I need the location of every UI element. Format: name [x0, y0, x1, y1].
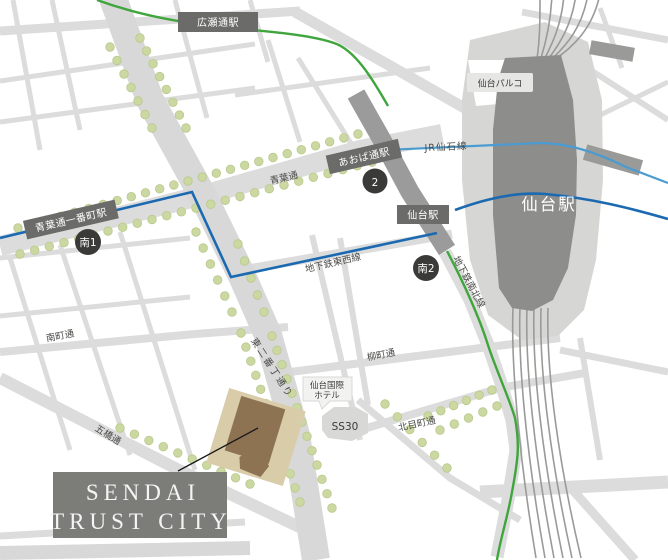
tree-icon — [133, 219, 142, 228]
ss30-label: SS30 — [332, 421, 359, 433]
tree-icon — [30, 246, 39, 255]
tree-icon — [240, 257, 249, 266]
title-line2: TRUST CITY — [50, 509, 232, 534]
tree-icon — [212, 169, 221, 178]
tree-icon — [268, 332, 277, 341]
tree-icon — [237, 329, 246, 338]
tree-icon — [169, 98, 178, 107]
tree-icon — [493, 402, 502, 411]
tree-icon — [198, 173, 207, 182]
tree-icon — [228, 308, 237, 317]
tree-icon — [340, 134, 349, 143]
tree-icon — [234, 240, 243, 249]
tree-icon — [226, 165, 235, 174]
tree-icon — [170, 181, 179, 190]
tree-icon — [381, 400, 390, 409]
tree-icon — [118, 223, 127, 232]
tree-icon — [120, 70, 129, 79]
tree-icon — [449, 401, 458, 410]
tree-icon — [182, 124, 191, 133]
tree-icon — [246, 480, 255, 489]
tree-icon — [148, 215, 157, 224]
tree-icon — [141, 189, 150, 198]
parco-label: 仙台パルコ — [478, 78, 523, 90]
tree-icon — [60, 238, 69, 247]
tree-icon — [283, 149, 292, 158]
tree-icon — [155, 185, 164, 194]
tree-icon — [145, 436, 154, 445]
tree-icon — [291, 484, 300, 493]
tree-icon — [479, 408, 488, 417]
tree-icon — [116, 424, 125, 433]
title-line1: SENDAI — [86, 480, 200, 505]
tree-icon — [142, 47, 151, 56]
tree-icon — [311, 142, 320, 151]
tree-icon — [430, 451, 439, 460]
tree-icon — [192, 228, 201, 237]
tree-icon — [206, 200, 215, 209]
tree-icon — [174, 449, 183, 458]
tree-icon — [242, 343, 251, 352]
exit-minami1-label: 南1 — [79, 236, 96, 249]
tree-icon — [450, 420, 459, 429]
sendai-building-label: 仙台駅 — [521, 195, 577, 214]
tree-icon — [323, 489, 332, 498]
tree-icon — [437, 407, 446, 416]
tree-icon — [328, 504, 337, 513]
tree-icon — [127, 83, 136, 92]
tree-icon — [488, 386, 497, 395]
tree-icon — [253, 291, 262, 300]
tree-icon — [240, 161, 249, 170]
tree-icon — [45, 242, 54, 251]
tree-icon — [303, 432, 312, 441]
access-map: 仙台パルコ 仙台国際 ホテル SS30 青葉通 JR仙石線 地下鉄東西線 地下鉄… — [0, 0, 668, 560]
tree-icon — [273, 346, 282, 355]
tree-icon — [231, 474, 240, 483]
tree-icon — [436, 426, 445, 435]
tree-icon — [250, 188, 259, 197]
sendai-subway-label: 仙台駅 — [407, 209, 439, 222]
tree-icon — [127, 192, 136, 201]
tree-icon — [14, 224, 23, 233]
tree-icon — [162, 85, 171, 94]
tree-icon — [247, 274, 256, 283]
tree-icon — [16, 250, 25, 259]
tree-icon — [136, 34, 145, 43]
tree-icon — [213, 276, 222, 285]
tree-icon — [247, 357, 256, 366]
tree-icon — [206, 260, 215, 269]
tree-icon — [278, 360, 287, 369]
tree-icon — [236, 192, 245, 201]
tree-icon — [475, 391, 484, 400]
tree-icon — [162, 211, 171, 220]
tree-icon — [106, 43, 115, 52]
tree-icon — [221, 292, 230, 301]
tree-icon — [177, 208, 186, 217]
tree-icon — [296, 498, 305, 507]
tree-icon — [443, 464, 452, 473]
tree-icon — [254, 157, 263, 166]
aobadori-exit2-label: 2 — [372, 177, 379, 189]
map-canvas: 仙台パルコ 仙台国際 ホテル SS30 青葉通 JR仙石線 地下鉄東西線 地下鉄… — [0, 0, 668, 560]
tree-icon — [325, 138, 334, 147]
hirosedori-label: 広瀬通駅 — [197, 16, 239, 29]
tree-icon — [134, 97, 143, 106]
tree-icon — [464, 414, 473, 423]
tree-icon — [184, 177, 193, 186]
tree-icon — [155, 72, 164, 81]
tree-icon — [418, 438, 427, 447]
tree-icon — [221, 196, 230, 205]
tree-icon — [354, 130, 363, 139]
tree-icon — [260, 308, 269, 317]
tree-icon — [148, 124, 157, 133]
tree-icon — [104, 227, 113, 236]
kokusai-hotel-label-1: 仙台国際 — [310, 380, 345, 391]
tree-icon — [297, 145, 306, 154]
tree-icon — [313, 461, 322, 470]
tree-icon — [269, 153, 278, 162]
tree-icon — [393, 413, 402, 422]
sendai-station-building — [493, 55, 577, 311]
tree-icon — [308, 446, 317, 455]
jr-senseki-label: JR仙石線 — [423, 140, 467, 154]
tree-icon — [318, 475, 327, 484]
tree-icon — [130, 430, 139, 439]
tree-icon — [141, 110, 150, 119]
tree-icon — [175, 111, 184, 120]
tree-icon — [309, 173, 318, 182]
tree-icon — [462, 396, 471, 405]
tree-icon — [199, 244, 208, 253]
tree-icon — [252, 371, 261, 380]
kokusai-hotel-label-2: ホテル — [314, 391, 340, 401]
tree-icon — [159, 442, 168, 451]
tree-icon — [113, 56, 122, 65]
tree-icon — [256, 385, 265, 394]
exit-minami2-label: 南2 — [417, 262, 434, 275]
tree-icon — [149, 59, 158, 68]
